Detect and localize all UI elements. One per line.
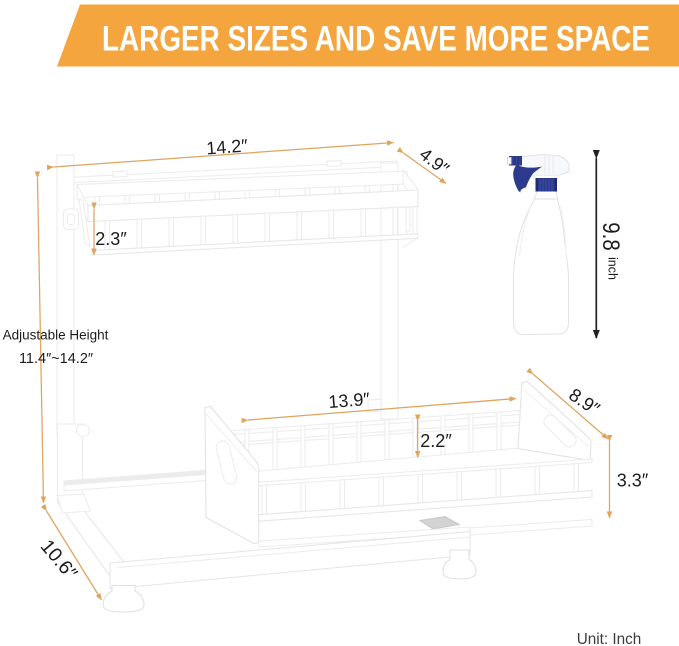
svg-text:13.9″: 13.9″ <box>328 389 371 412</box>
svg-text:14.2″: 14.2″ <box>206 135 249 158</box>
svg-text:3.3″: 3.3″ <box>617 471 649 491</box>
svg-text:Adjustable Height: Adjustable Height <box>3 328 109 343</box>
svg-text:LARGER SIZES AND SAVE MORE SPA: LARGER SIZES AND SAVE MORE SPACE <box>102 20 650 59</box>
svg-text:inch: inch <box>606 257 620 280</box>
svg-text:9.8: 9.8 <box>597 222 624 251</box>
svg-text:2.3″: 2.3″ <box>95 229 127 249</box>
svg-text:2.2″: 2.2″ <box>420 431 452 451</box>
svg-text:Unit: Inch: Unit: Inch <box>577 631 642 646</box>
svg-text:11.4″~14.2″: 11.4″~14.2″ <box>19 351 93 367</box>
